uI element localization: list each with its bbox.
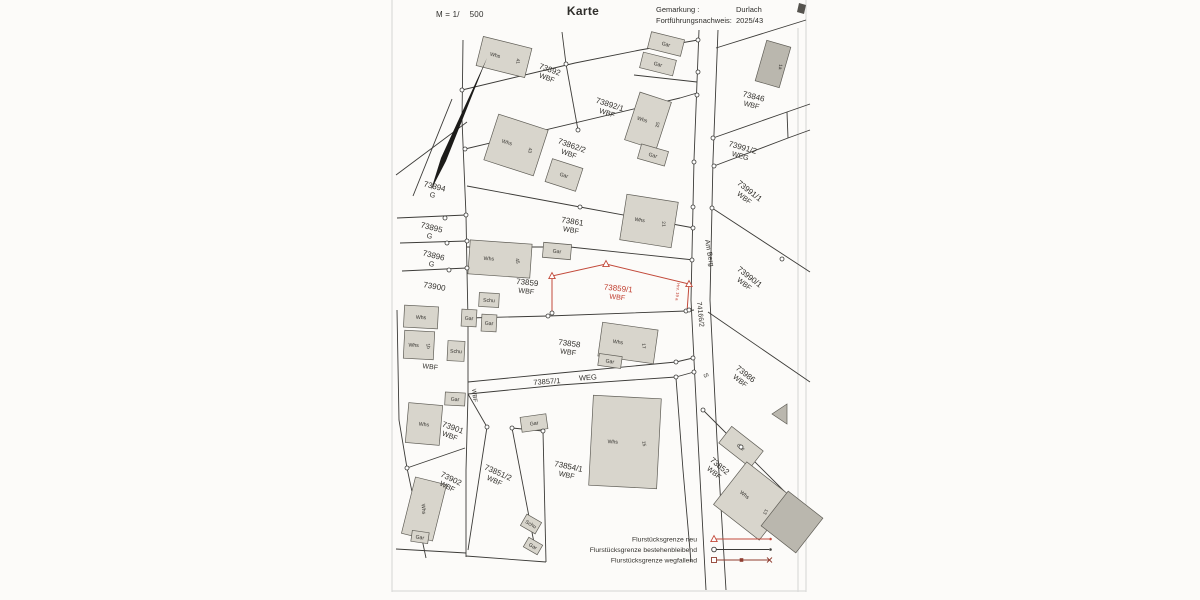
parcel-label: 73861WBF: [559, 215, 584, 236]
parcel-boundary-line: [407, 448, 465, 468]
boundary-point-marker: [464, 213, 468, 217]
boundary-point-marker: [546, 314, 550, 318]
parcel-boundary-line: [543, 431, 546, 562]
parcel-boundary-line: [397, 215, 466, 218]
parcel-boundary-line: [676, 378, 691, 562]
boundary-point-marker: [691, 356, 695, 360]
new-boundary-point-marker: [603, 261, 609, 267]
building-footprint: [589, 395, 662, 488]
legend-square-marker: [712, 558, 717, 563]
building-use-label: Gar: [605, 358, 615, 365]
building: Whs41: [476, 36, 532, 77]
parcel-boundary-line: [787, 112, 788, 138]
parcel-label: 73854/1WBF: [552, 459, 584, 482]
building: Whs21: [620, 194, 679, 248]
boundary-point-marker: [695, 93, 699, 97]
boundary-point-marker: [712, 164, 716, 168]
building: Gar: [545, 159, 583, 192]
parcel-boundary-line: [712, 208, 810, 272]
parcel-usage: G: [426, 231, 434, 241]
scale-prefix: M = 1/: [436, 10, 460, 19]
boundary-point-marker: [687, 308, 691, 312]
parcel-label: 73858WBF: [557, 338, 582, 359]
boundary-point-marker: [692, 370, 696, 374]
scale-value: 500: [470, 10, 484, 19]
building-use-label: Gar: [415, 534, 425, 541]
building: Gar: [542, 242, 571, 259]
parcel-label: 73986WBF: [729, 364, 758, 392]
boundary-point-marker: [701, 408, 705, 412]
building: Gar: [411, 530, 429, 543]
building-footprint: [620, 194, 679, 248]
parcel-boundary-line: [466, 556, 546, 562]
boundary-point-marker: [465, 266, 469, 270]
building: Gar: [461, 309, 477, 327]
parcel-boundary-line: [400, 241, 467, 243]
parcel-number: 73900: [423, 280, 447, 293]
boundary-point-marker: [780, 257, 784, 261]
parcel-label: 73900: [423, 280, 447, 293]
gemarkung-value: Durlach: [736, 4, 796, 15]
boundary-point-marker: [710, 206, 714, 210]
parcel-usage: WBF: [560, 346, 578, 357]
boundary-point-marker: [578, 205, 582, 209]
boundary-point-marker: [445, 241, 449, 245]
boundary-point-marker: [550, 311, 554, 315]
gemarkung-row: Gemarkung : Durlach: [656, 4, 796, 15]
boundary-point-marker: [674, 375, 678, 379]
map-annotation: S: [701, 372, 709, 379]
map-header: M = 1/500 Karte Gemarkung : Durlach Fort…: [0, 0, 1200, 30]
building-use-label: Gar: [552, 249, 561, 256]
boundary-point-marker: [739, 445, 743, 449]
boundary-point-marker: [711, 136, 715, 140]
building-use-label: Whs: [418, 422, 429, 429]
boundary-point-marker: [674, 360, 678, 364]
map-annotation: WBF: [470, 389, 477, 403]
gemarkung-label: Gemarkung :: [656, 4, 736, 15]
parcel-boundary-line: [468, 427, 487, 550]
parcel-label: 73991/2WEG: [725, 139, 758, 164]
boundary-point-marker: [691, 205, 695, 209]
building-house-number: 17: [640, 343, 646, 349]
map-annotation: Hnr. 19 a: [674, 283, 681, 301]
boundary-point-marker: [510, 426, 514, 430]
building: Gar: [637, 144, 668, 166]
legend-circle-marker: [712, 547, 717, 552]
map-annotation: WBF: [422, 363, 438, 372]
north-arrow-icon: [431, 58, 487, 190]
parcel-label: 73990/1WBF: [730, 265, 764, 297]
building: Gar: [640, 52, 677, 76]
parcel-label: 73894G: [421, 180, 447, 202]
legend-item-removed: Flurstücksgrenze wegfallend: [611, 557, 772, 564]
boundary-point-marker: [696, 38, 700, 42]
building-use-label: Whs: [483, 256, 494, 263]
building: Whs15: [589, 395, 662, 488]
building-use-label: Gar: [529, 420, 539, 427]
building-use-label: Whs: [408, 342, 419, 349]
building-footprint: [468, 240, 532, 278]
building-use-label: Whs: [607, 439, 618, 446]
building-house-number: 21: [660, 221, 666, 227]
fortfuehrung-label: Fortführungsnachweis:: [656, 15, 736, 26]
building: Gar: [523, 537, 542, 555]
boundary-point-marker: [696, 70, 700, 74]
parcel-boundary-line: [713, 104, 810, 138]
building-use-label: Gar: [464, 316, 473, 322]
cadastral-map: Whs41GarGar1aWhs43GarWhs52GarWhs21GarWhs…: [0, 0, 1200, 600]
building: Gar: [647, 32, 684, 57]
building-footprint: [625, 92, 672, 150]
building-use-label: Whs: [416, 315, 427, 322]
fortfuehrung-value: 2025/43: [736, 15, 796, 26]
parcel-usage: G: [429, 190, 437, 200]
building: Schu: [520, 514, 541, 534]
building-footprint: [755, 40, 791, 87]
parcel-boundary-line: [566, 64, 578, 130]
building-use-label: Schu: [483, 298, 495, 305]
header-fields: Gemarkung : Durlach Fortführungsnachweis…: [656, 4, 796, 26]
building: 1a: [755, 40, 791, 87]
boundary-point-marker: [460, 88, 464, 92]
boundary-point-marker: [443, 216, 447, 220]
legend-end-dot: [769, 548, 772, 551]
boundary-point-marker: [576, 128, 580, 132]
parcel-boundary-line: [468, 310, 694, 318]
building-footprint: [484, 114, 548, 176]
parcel-label: 73846WBF: [740, 90, 766, 112]
building-footprint: [772, 404, 787, 424]
building: Whs1b: [403, 330, 434, 360]
legend-item-existing: Flurstücksgrenze bestehenbleibend: [590, 547, 772, 554]
parcel-label: 73892WBF: [535, 62, 562, 86]
parcel-boundary-line: [402, 268, 467, 271]
parcel-label: 73896G: [420, 249, 446, 271]
building-house-number: 43: [526, 147, 533, 153]
building: Whs43: [484, 114, 548, 176]
parcel-usage: WBF: [562, 224, 580, 236]
parcel-label: 73991/1WBF: [730, 179, 764, 211]
boundary-point-marker: [485, 425, 489, 429]
building-use-label: Gar: [484, 321, 493, 327]
building-footprint: [476, 36, 532, 77]
legend-label: Flurstücksgrenze bestehenbleibend: [590, 547, 698, 554]
parcel-label: 73851/2WBF: [480, 463, 514, 491]
parcel-label: 73859/1WBF: [603, 283, 634, 303]
map-annotation: 73857/1: [533, 376, 561, 387]
boundary-point-marker: [405, 466, 409, 470]
map-annotation: 74166/2: [695, 301, 705, 327]
page-title: Karte: [553, 4, 613, 18]
parcel-label: 73895G: [418, 221, 444, 243]
legend-end-dot: [769, 538, 772, 541]
building: Schu: [447, 341, 465, 362]
building: Whs: [403, 305, 438, 329]
building: Whs45: [468, 240, 532, 278]
parcel-label: 73862/2WBF: [554, 136, 588, 163]
scale-label: M = 1/500: [436, 10, 484, 19]
building: Whs52: [625, 92, 672, 150]
building-use-label: Gar: [450, 397, 459, 403]
building: Gar: [481, 314, 497, 332]
building: Gar: [445, 392, 466, 406]
building-use-label: Whs: [419, 504, 426, 515]
fortfuehrung-row: Fortführungsnachweis: 2025/43: [656, 15, 796, 26]
parcel-label: 73901WBF: [438, 420, 465, 444]
building-house-number: 52: [654, 122, 661, 128]
scanned-map-page: M = 1/500 Karte Gemarkung : Durlach Fort…: [0, 0, 1200, 600]
parcel-usage: WBF: [609, 292, 626, 303]
boundary-point-marker: [564, 62, 568, 66]
boundary-point-marker: [691, 226, 695, 230]
building-house-number: 1a: [777, 64, 783, 70]
legend-label: Flurstücksgrenze neu: [632, 536, 697, 543]
parcel-usage: WBF: [518, 286, 535, 297]
boundary-point-marker: [690, 258, 694, 262]
parcel-boundary-line: [562, 32, 566, 64]
parcel-boundary-line: [634, 75, 697, 82]
parcel-boundary-line: [708, 312, 810, 382]
parcel-label: 73859WBF: [515, 277, 540, 297]
parcel-usage: G: [428, 259, 436, 269]
boundary-point-marker: [463, 147, 467, 151]
legend-mid-square: [740, 558, 744, 562]
building-house-number: 41: [514, 58, 520, 64]
boundary-point-marker: [692, 160, 696, 164]
legend-label: Flurstücksgrenze wegfallend: [611, 557, 697, 564]
building: Whs: [405, 403, 442, 446]
boundary-point-marker: [465, 239, 469, 243]
boundary-point-marker: [541, 429, 545, 433]
map-annotation: Am Berg: [703, 239, 715, 267]
parcel-label: 73852WBF: [703, 455, 732, 483]
legend-item-new: Flurstücksgrenze neu: [632, 536, 772, 544]
building: Schu: [479, 292, 500, 307]
map-annotation: WEG: [579, 372, 598, 382]
building-use-label: Schu: [450, 349, 462, 356]
boundary-point-marker: [447, 268, 451, 272]
parcel-boundary-line: [396, 549, 466, 553]
